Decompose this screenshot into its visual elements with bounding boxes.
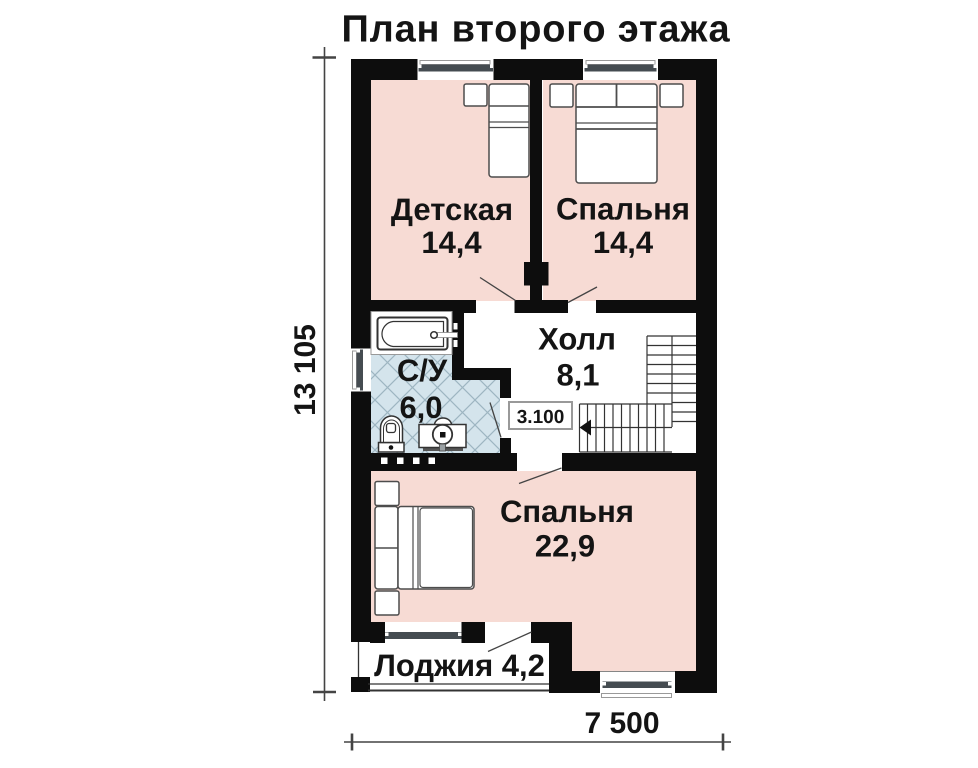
svg-text:План второго этажа: План второго этажа <box>342 9 731 51</box>
svg-text:8,1: 8,1 <box>556 358 599 393</box>
svg-text:Детская: Детская <box>391 192 513 227</box>
svg-text:22,9: 22,9 <box>535 529 595 564</box>
svg-text:14,4: 14,4 <box>421 225 482 260</box>
svg-text:Спальня: Спальня <box>556 192 690 227</box>
svg-text:3.100: 3.100 <box>517 407 565 428</box>
svg-text:С/У: С/У <box>397 353 448 388</box>
svg-text:Лоджия 4,2: Лоджия 4,2 <box>374 648 545 683</box>
svg-text:Холл: Холл <box>538 322 616 357</box>
svg-text:14,4: 14,4 <box>593 225 654 260</box>
svg-text:7 500: 7 500 <box>584 707 659 740</box>
svg-text:Спальня: Спальня <box>500 494 634 529</box>
svg-text:6,0: 6,0 <box>399 390 442 425</box>
svg-text:13 105: 13 105 <box>289 324 322 416</box>
